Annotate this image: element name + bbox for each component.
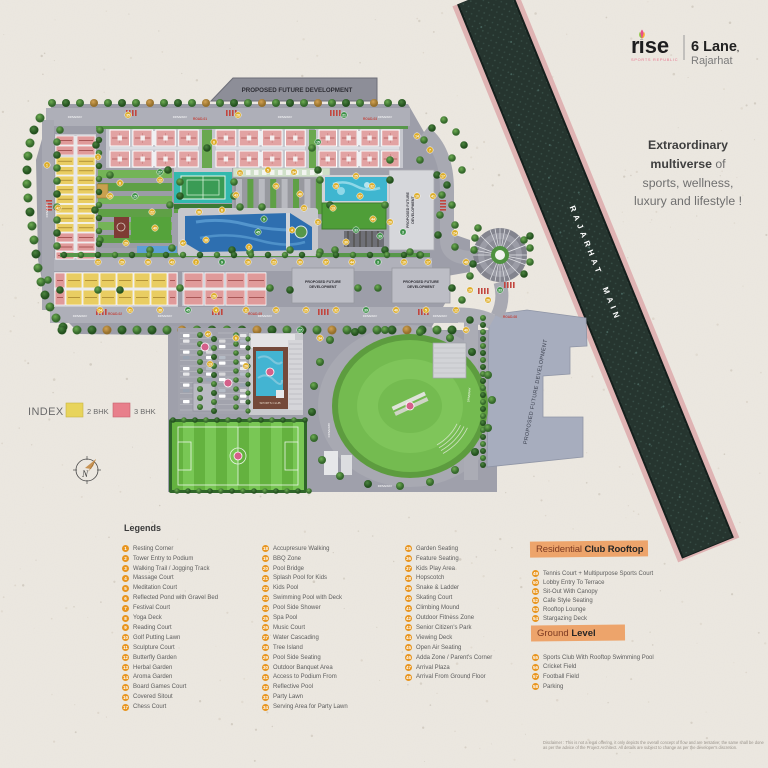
svg-text:16: 16 <box>274 184 278 188</box>
svg-text:8: 8 <box>119 181 121 185</box>
svg-text:rise: rise <box>631 33 669 58</box>
svg-text:43: 43 <box>234 193 238 197</box>
svg-text:17: 17 <box>426 260 430 264</box>
svg-text:1: 1 <box>97 155 99 159</box>
svg-text:37: 37 <box>358 194 362 198</box>
svg-text:2 BHK: 2 BHK <box>87 407 109 416</box>
svg-text:DRIVEWAY: DRIVEWAY <box>363 314 378 318</box>
svg-text:40: 40 <box>464 328 468 332</box>
svg-text:12: 12 <box>158 178 162 182</box>
svg-text:DRIVEWAY: DRIVEWAY <box>158 314 173 318</box>
svg-text:PROPOSED FUTURE: PROPOSED FUTURE <box>403 280 440 284</box>
svg-text:30: 30 <box>344 240 348 244</box>
svg-text:DRIVEWAY: DRIVEWAY <box>327 423 331 438</box>
svg-text:47: 47 <box>181 241 185 245</box>
svg-text:25: 25 <box>304 308 308 312</box>
svg-text:DRIVEWAY: DRIVEWAY <box>68 115 83 119</box>
svg-text:37: 37 <box>324 260 328 264</box>
svg-text:46: 46 <box>298 192 302 196</box>
svg-text:30: 30 <box>298 260 302 264</box>
svg-text:13: 13 <box>208 362 212 366</box>
svg-text:28: 28 <box>236 113 240 117</box>
svg-text:12: 12 <box>454 308 458 312</box>
svg-text:6: 6 <box>221 208 223 212</box>
svg-text:29: 29 <box>124 241 128 245</box>
svg-text:11: 11 <box>244 308 248 312</box>
svg-text:10: 10 <box>415 194 419 198</box>
svg-text:31: 31 <box>238 171 242 175</box>
svg-text:33: 33 <box>498 288 502 292</box>
svg-text:PROPOSED FUTURE DEVELOPMENT: PROPOSED FUTURE DEVELOPMENT <box>242 87 353 94</box>
svg-text:15: 15 <box>133 194 137 198</box>
svg-text:14: 14 <box>415 134 419 138</box>
svg-text:18: 18 <box>334 184 338 188</box>
svg-text:N: N <box>81 469 89 479</box>
svg-text:6 Lane,: 6 Lane, <box>691 39 739 55</box>
svg-text:3: 3 <box>377 260 379 264</box>
svg-text:DRIVEWAY: DRIVEWAY <box>378 115 393 119</box>
svg-text:DRIVEWAY: DRIVEWAY <box>73 314 88 318</box>
svg-text:3 BHK: 3 BHK <box>134 407 156 416</box>
svg-text:23: 23 <box>302 206 306 210</box>
svg-text:33: 33 <box>354 228 358 232</box>
svg-text:DEVELOPMENT: DEVELOPMENT <box>407 285 435 289</box>
svg-text:ROAD-01: ROAD-01 <box>193 117 207 121</box>
svg-text:5: 5 <box>267 168 269 172</box>
svg-text:DRIVEWAY: DRIVEWAY <box>173 115 188 119</box>
svg-text:6: 6 <box>235 336 237 340</box>
svg-text:45: 45 <box>256 230 260 234</box>
svg-text:38: 38 <box>158 308 162 312</box>
svg-text:16: 16 <box>246 260 250 264</box>
svg-text:1: 1 <box>46 163 48 167</box>
svg-text:34: 34 <box>292 170 296 174</box>
svg-text:22: 22 <box>96 260 100 264</box>
svg-text:DRIVEWAY: DRIVEWAY <box>433 314 448 318</box>
svg-text:18: 18 <box>274 308 278 312</box>
svg-text:3: 3 <box>402 230 404 234</box>
svg-text:47: 47 <box>206 332 210 336</box>
svg-text:SPORTS REPUBLIC: SPORTS REPUBLIC <box>631 57 678 62</box>
svg-text:Rajarhat: Rajarhat <box>691 55 733 67</box>
svg-text:43: 43 <box>170 260 174 264</box>
svg-text:8: 8 <box>213 140 215 144</box>
svg-text:44: 44 <box>371 217 375 221</box>
svg-text:32: 32 <box>370 184 374 188</box>
svg-text:24: 24 <box>453 231 457 235</box>
svg-text:34: 34 <box>318 336 322 340</box>
svg-text:22: 22 <box>150 210 154 214</box>
svg-text:DEVELOPMENT: DEVELOPMENT <box>411 196 415 224</box>
svg-text:11: 11 <box>316 220 320 224</box>
svg-text:ROAD-02: ROAD-02 <box>108 312 122 316</box>
svg-text:26: 26 <box>486 298 490 302</box>
svg-text:15: 15 <box>316 140 320 144</box>
svg-text:31: 31 <box>128 308 132 312</box>
svg-text:48: 48 <box>464 260 468 264</box>
svg-text:4: 4 <box>215 308 217 312</box>
svg-text:32: 32 <box>334 308 338 312</box>
svg-text:40: 40 <box>153 226 157 230</box>
svg-text:45: 45 <box>186 308 190 312</box>
svg-text:10: 10 <box>402 260 406 264</box>
svg-text:9: 9 <box>263 217 265 221</box>
svg-text:46: 46 <box>394 308 398 312</box>
svg-text:7: 7 <box>429 148 431 152</box>
svg-text:26: 26 <box>212 294 216 298</box>
svg-text:20: 20 <box>388 220 392 224</box>
svg-text:44: 44 <box>350 260 354 264</box>
svg-text:39: 39 <box>364 308 368 312</box>
svg-text:38: 38 <box>204 238 208 242</box>
svg-text:27: 27 <box>158 170 162 174</box>
svg-text:41: 41 <box>431 194 435 198</box>
svg-text:DRIVEWAY: DRIVEWAY <box>378 484 393 488</box>
svg-text:5: 5 <box>425 308 427 312</box>
svg-text:DRIVEWAY: DRIVEWAY <box>45 203 49 218</box>
svg-text:19: 19 <box>108 194 112 198</box>
svg-text:24: 24 <box>98 308 102 312</box>
svg-text:21: 21 <box>342 113 346 117</box>
svg-text:39: 39 <box>378 234 382 238</box>
svg-text:4: 4 <box>291 228 293 232</box>
svg-text:17: 17 <box>441 174 445 178</box>
svg-text:ROAD-05: ROAD-05 <box>248 312 262 316</box>
svg-text:2: 2 <box>248 245 250 249</box>
svg-text:INDEX: INDEX <box>28 406 64 418</box>
svg-text:29: 29 <box>120 260 124 264</box>
svg-text:13: 13 <box>331 206 335 210</box>
svg-text:25: 25 <box>354 174 358 178</box>
svg-text:DEVELOPMENT: DEVELOPMENT <box>309 285 337 289</box>
svg-text:36: 36 <box>146 260 150 264</box>
svg-text:23: 23 <box>272 260 276 264</box>
svg-text:PROPOSED FUTURE: PROPOSED FUTURE <box>406 191 410 228</box>
svg-text:9: 9 <box>221 260 223 264</box>
svg-text:ROAD-03: ROAD-03 <box>363 117 377 121</box>
svg-text:2: 2 <box>195 260 197 264</box>
svg-text:42: 42 <box>56 206 60 210</box>
svg-text:DRIVEWAY: DRIVEWAY <box>278 115 293 119</box>
svg-text:20: 20 <box>244 364 248 368</box>
svg-text:27: 27 <box>298 328 302 332</box>
svg-text:36: 36 <box>197 210 201 214</box>
svg-text:35: 35 <box>126 113 130 117</box>
svg-text:ROAD-08: ROAD-08 <box>503 315 517 319</box>
svg-text:PROPOSED FUTURE: PROPOSED FUTURE <box>305 280 342 284</box>
svg-text:19: 19 <box>468 288 472 292</box>
